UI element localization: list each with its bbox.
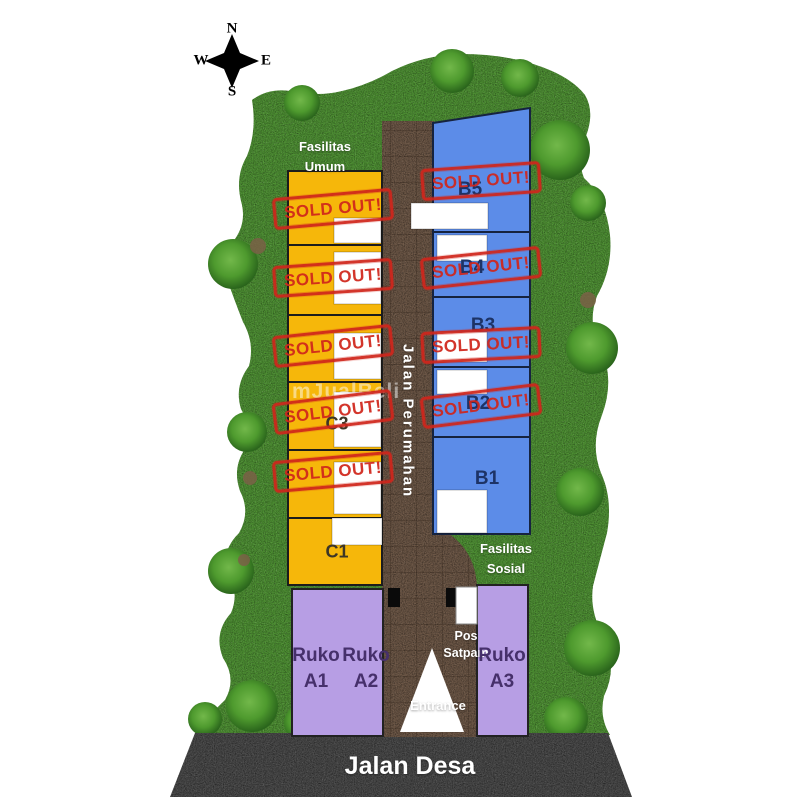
fasilitas-sosial-line2: Sosial [487, 561, 525, 576]
ruko-number: A2 [342, 669, 390, 695]
ruko-number: A1 [292, 669, 340, 695]
site-plan-map: N W E S Fasilitas Umum Fasilitas Sosial … [0, 0, 800, 800]
compass-west-label: W [194, 53, 209, 70]
main-road-label: Jalan Desa [330, 752, 490, 781]
fasilitas-sosial-label: Fasilitas Sosial [458, 539, 554, 578]
fasilitas-umum-line1: Fasilitas [299, 139, 351, 154]
compass-east-label: E [261, 53, 271, 70]
ruko-word: Ruko [342, 643, 390, 669]
ruko-a2-label: RukoA2 [342, 643, 390, 694]
entrance-label: Entrance [403, 698, 473, 713]
gate-left [388, 588, 400, 607]
fasilitas-sosial-line1: Fasilitas [480, 541, 532, 556]
ruko-a1-label: RukoA1 [292, 643, 340, 694]
guard-post-line1: Pos [455, 629, 478, 643]
ruko-number: A3 [478, 669, 526, 695]
ruko-a3-label: RukoA3 [478, 643, 526, 694]
lot-label-b1: B1 [475, 468, 499, 490]
ruko-word: Ruko [292, 643, 340, 669]
compass-north-label: N [227, 21, 238, 38]
lot-label-c1: C1 [325, 542, 348, 563]
ruko-word: Ruko [478, 643, 526, 669]
compass-south-label: S [228, 84, 236, 101]
sold-out-stamp: SOLD OUT! [420, 326, 542, 364]
compass-star-icon [205, 34, 259, 88]
fasilitas-umum-line2: Umum [305, 159, 345, 174]
fasilitas-umum-label: Fasilitas Umum [280, 137, 370, 176]
internal-street-label: Jalan Perumahan [392, 336, 424, 506]
guard-post-building [456, 587, 477, 624]
